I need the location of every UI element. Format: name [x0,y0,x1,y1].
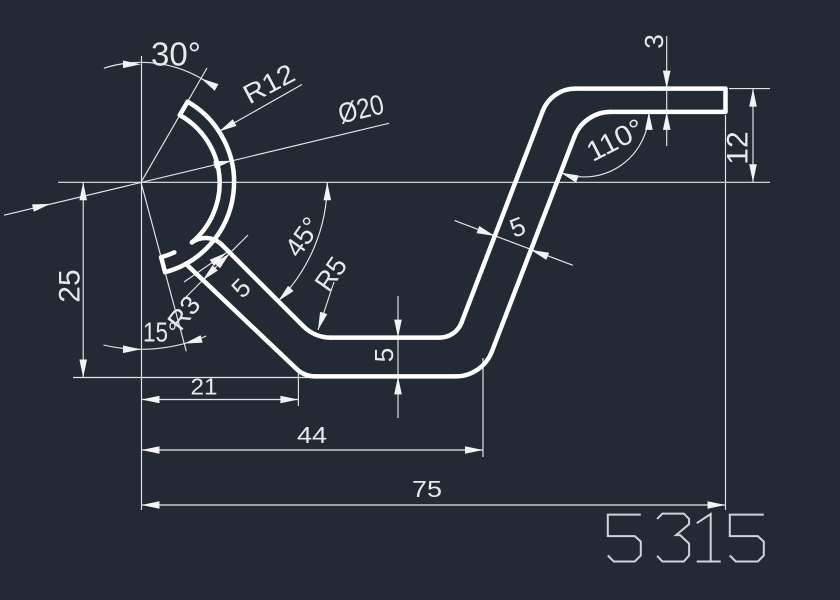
svg-text:3: 3 [639,34,669,48]
svg-text:21: 21 [191,374,218,400]
svg-text:15°: 15° [143,317,177,348]
svg-text:25: 25 [54,269,87,302]
svg-text:5: 5 [369,348,399,362]
svg-text:12: 12 [722,131,755,164]
svg-text:30°: 30° [151,36,201,73]
svg-text:75: 75 [412,476,442,502]
svg-text:44: 44 [297,422,327,448]
